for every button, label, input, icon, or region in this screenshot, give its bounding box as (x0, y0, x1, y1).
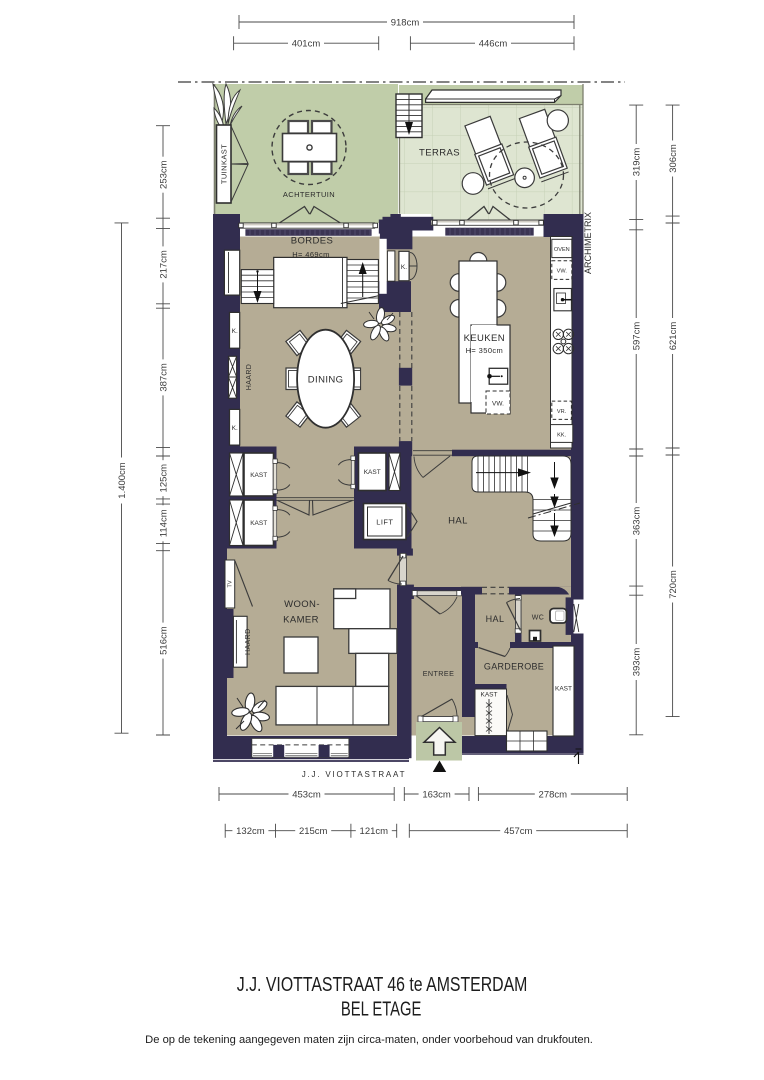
svg-text:597cm: 597cm (632, 322, 643, 351)
svg-text:KAMER: KAMER (283, 615, 319, 626)
svg-text:918cm: 918cm (391, 18, 420, 29)
svg-text:TV: TV (228, 580, 234, 587)
svg-text:163cm: 163cm (422, 790, 451, 801)
svg-text:217cm: 217cm (159, 250, 170, 279)
svg-text:K.: K. (232, 328, 238, 335)
svg-text:J.J. VIOTTASTRAAT: J.J. VIOTTASTRAAT (302, 770, 407, 779)
svg-text:VW.: VW. (557, 269, 568, 275)
svg-text:J.J. VIOTTASTRAAT 46 te AMSTER: J.J. VIOTTASTRAAT 46 te AMSTERDAM (237, 974, 528, 996)
svg-text:VR.: VR. (557, 409, 567, 415)
svg-text:446cm: 446cm (479, 39, 508, 50)
svg-text:OVEN: OVEN (554, 247, 570, 253)
svg-text:K.: K. (232, 425, 238, 432)
svg-text:WOON-: WOON- (284, 599, 320, 610)
svg-text:KAST: KAST (555, 686, 572, 693)
svg-text:KAST: KAST (364, 469, 381, 476)
svg-text:720cm: 720cm (668, 570, 679, 599)
svg-text:TUINKAST: TUINKAST (220, 144, 229, 184)
svg-text:KAST: KAST (250, 520, 267, 527)
svg-text:BORDES: BORDES (291, 236, 334, 247)
svg-text:457cm: 457cm (504, 826, 533, 837)
svg-text:ENTREE: ENTREE (423, 669, 455, 678)
svg-text:114cm: 114cm (159, 509, 170, 537)
svg-text:253cm: 253cm (159, 160, 170, 189)
svg-text:ACHTERTUIN: ACHTERTUIN (283, 190, 335, 199)
svg-text:215cm: 215cm (299, 826, 328, 837)
svg-text:125cm: 125cm (159, 464, 170, 493)
svg-text:453cm: 453cm (292, 790, 321, 801)
svg-text:ARCHIMETRIX: ARCHIMETRIX (583, 212, 593, 274)
svg-text:HAARD: HAARD (246, 364, 253, 391)
svg-text:KEUKEN: KEUKEN (464, 333, 505, 344)
svg-text:K.: K. (401, 264, 407, 271)
svg-text:621cm: 621cm (668, 322, 679, 351)
svg-text:KAST: KAST (250, 472, 267, 479)
svg-text:132cm: 132cm (236, 826, 265, 837)
svg-text:BEL ETAGE: BEL ETAGE (341, 999, 422, 1021)
svg-text:HAL: HAL (486, 614, 505, 624)
svg-text:278cm: 278cm (539, 790, 568, 801)
svg-text:1.400cm: 1.400cm (117, 462, 128, 499)
svg-text:319cm: 319cm (632, 148, 643, 177)
svg-text:387cm: 387cm (159, 363, 170, 392)
svg-text:401cm: 401cm (292, 39, 321, 50)
svg-text:De op de tekening aangegeven m: De op de tekening aangegeven maten zijn … (145, 1034, 593, 1046)
svg-text:HAARD: HAARD (245, 628, 252, 655)
svg-text:WC: WC (532, 615, 544, 622)
svg-text:393cm: 393cm (632, 648, 643, 677)
svg-text:DINING: DINING (308, 375, 344, 386)
svg-text:KK.: KK. (557, 433, 566, 439)
svg-text:H= 350cm: H= 350cm (466, 346, 504, 355)
svg-text:363cm: 363cm (632, 507, 643, 536)
svg-text:HAL: HAL (448, 516, 468, 527)
svg-text:TERRAS: TERRAS (419, 148, 460, 159)
svg-text:121cm: 121cm (360, 826, 389, 837)
svg-text:306cm: 306cm (668, 144, 679, 173)
svg-text:VW.: VW. (492, 401, 504, 408)
svg-text:GARDEROBE: GARDEROBE (484, 662, 544, 672)
svg-text:KAST: KAST (481, 692, 498, 699)
svg-text:LIFT: LIFT (376, 518, 393, 527)
svg-text:516cm: 516cm (159, 626, 170, 655)
